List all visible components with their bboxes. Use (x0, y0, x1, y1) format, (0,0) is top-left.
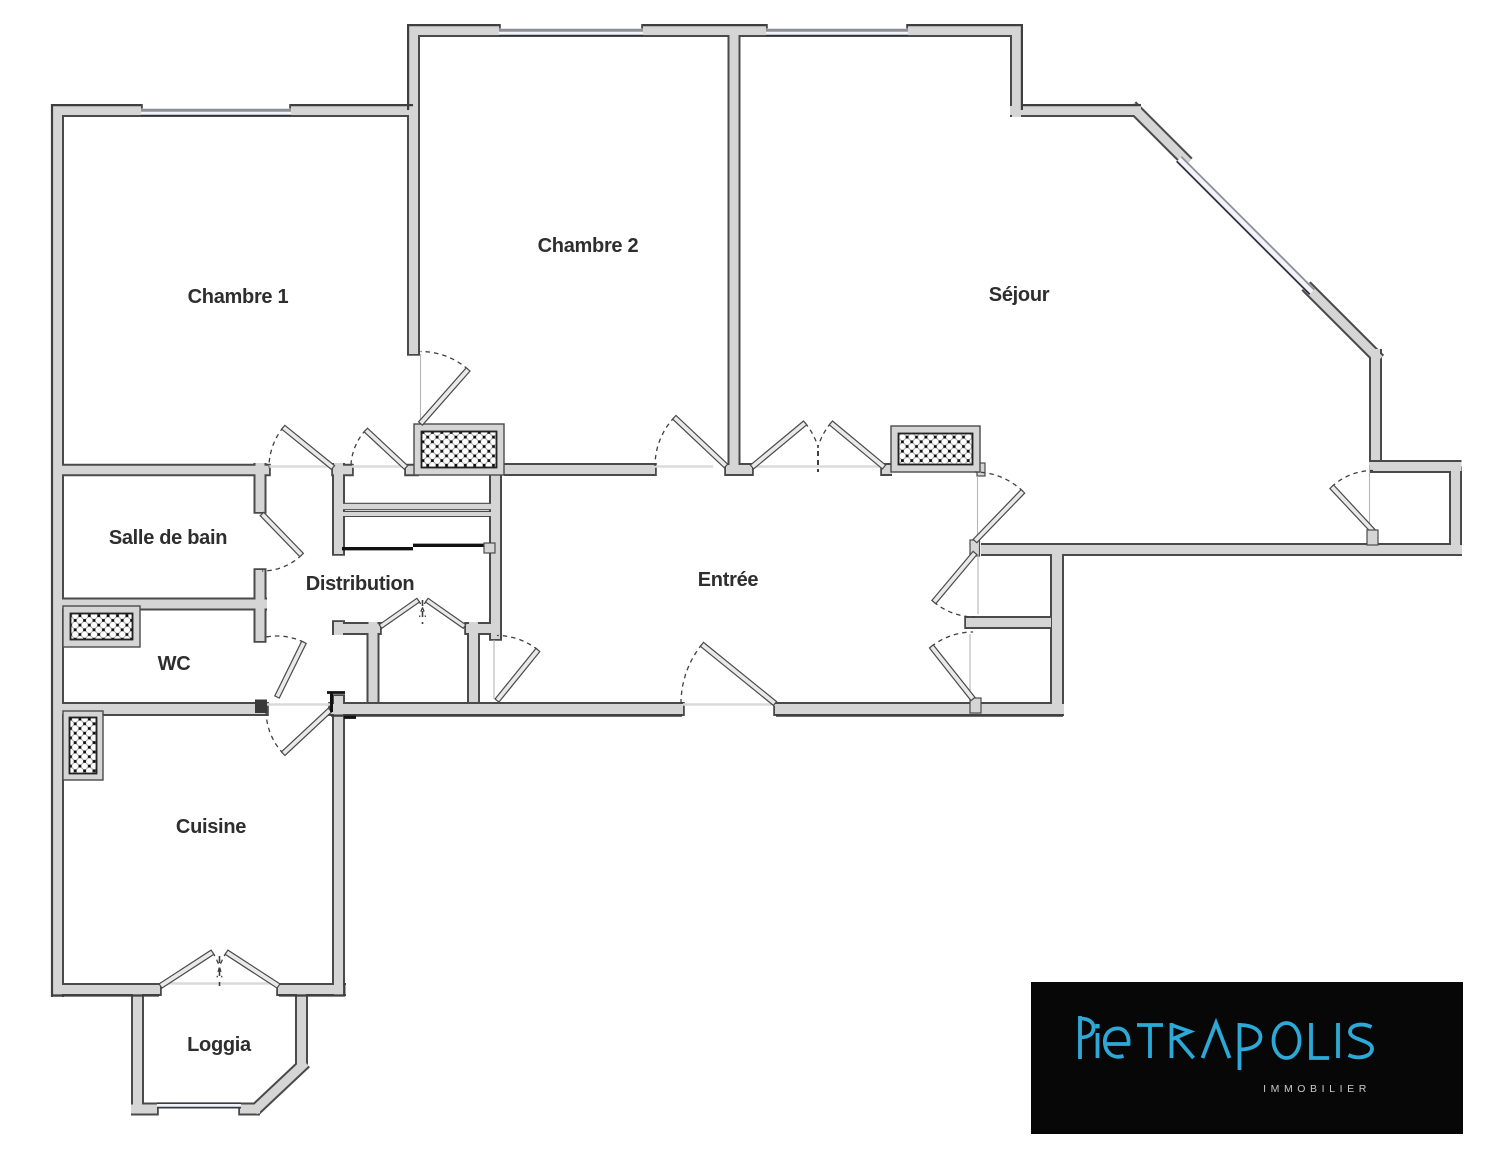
svg-text:IMMOBILIER: IMMOBILIER (1263, 1083, 1371, 1095)
svg-text:Cuisine: Cuisine (176, 816, 246, 838)
svg-text:Entrée: Entrée (698, 569, 759, 591)
svg-text:Distribution: Distribution (306, 573, 415, 595)
svg-text:Chambre 1: Chambre 1 (188, 286, 289, 308)
svg-text:WC: WC (158, 653, 191, 675)
svg-text:Chambre 2: Chambre 2 (538, 235, 639, 257)
svg-text:Salle de bain: Salle de bain (109, 527, 227, 549)
svg-text:Loggia: Loggia (187, 1034, 252, 1056)
svg-text:Séjour: Séjour (989, 284, 1050, 306)
